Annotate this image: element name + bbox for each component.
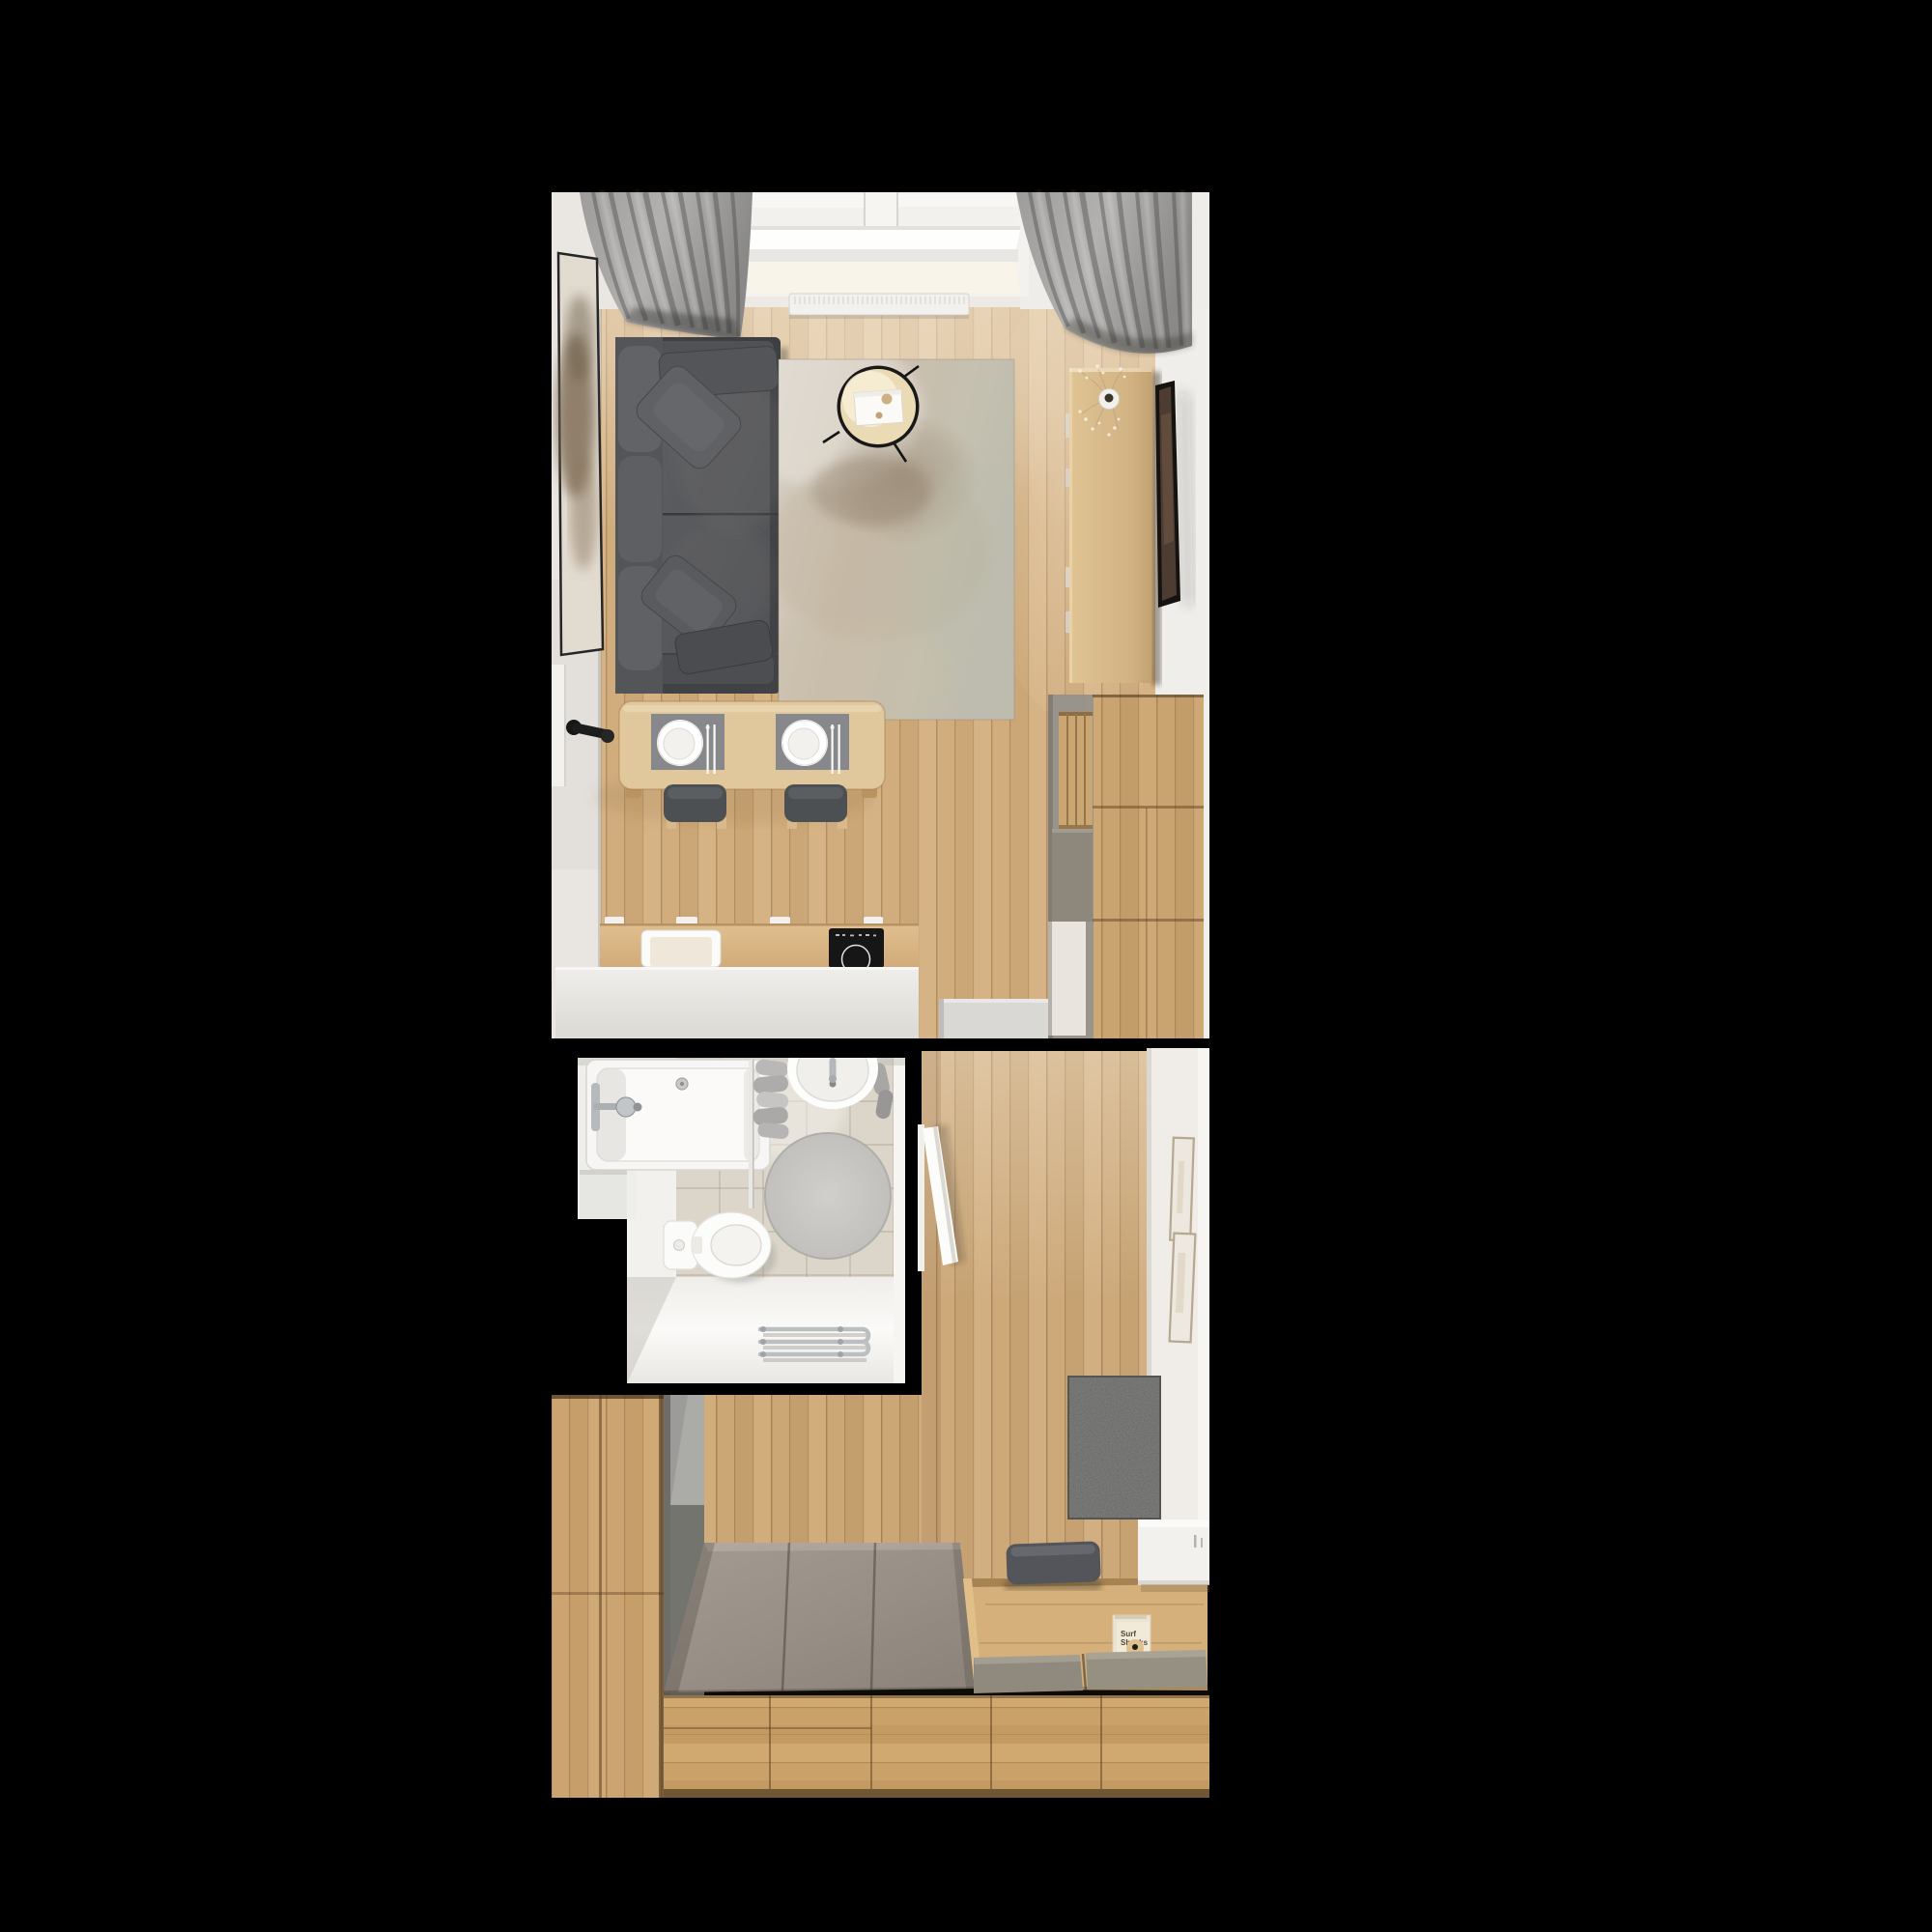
- svg-text:Surf: Surf: [1121, 1630, 1136, 1638]
